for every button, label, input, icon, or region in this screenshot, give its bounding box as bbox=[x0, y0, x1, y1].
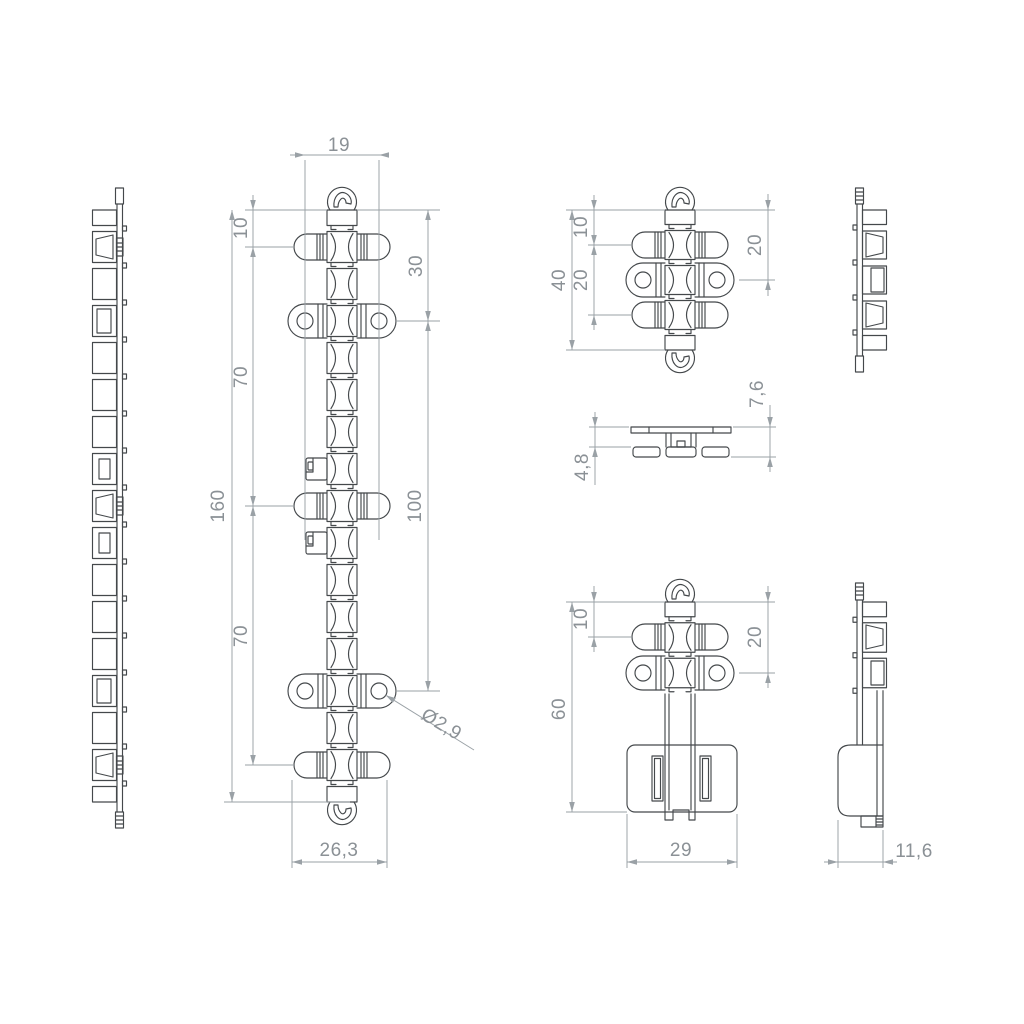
front-view-40 bbox=[626, 187, 734, 372]
dim-hole-span-19: 19 bbox=[328, 135, 350, 157]
dim-top-to-pin-10-40: 10 bbox=[571, 216, 593, 238]
front-view-60 bbox=[626, 579, 737, 820]
dim-top-to-pin-10-60: 10 bbox=[571, 608, 593, 630]
top-section-view bbox=[631, 427, 731, 457]
dim-body-height-4-8: 4,8 bbox=[572, 453, 594, 481]
drawing-stage: 19 10 70 160 70 30 100 26,3 Ø2,9 40 10 2… bbox=[0, 0, 1024, 1024]
technical-drawing-canvas bbox=[0, 0, 1024, 1024]
dim-top-to-hole-20-60: 20 bbox=[745, 626, 767, 648]
dim-overall-height-7-6: 7,6 bbox=[747, 380, 769, 408]
dim-pin-pitch-70-upper: 70 bbox=[231, 366, 253, 388]
dim-top-to-hole-20-40: 20 bbox=[745, 234, 767, 256]
dim-hole-pitch-100: 100 bbox=[405, 489, 427, 522]
top-section-dimensions bbox=[589, 405, 776, 485]
side-view-160 bbox=[93, 188, 127, 828]
side-view-40 bbox=[853, 188, 887, 372]
dim-overall-40: 40 bbox=[549, 269, 571, 291]
dim-base-width-29: 29 bbox=[670, 840, 692, 862]
dim-top-to-hole-30: 30 bbox=[406, 255, 428, 277]
dim-pin-pitch-70-lower: 70 bbox=[231, 625, 253, 647]
front-view-40-dimensions bbox=[566, 194, 775, 350]
side-view-60 bbox=[838, 583, 887, 827]
front-view-160 bbox=[288, 187, 396, 824]
dim-overall-160: 160 bbox=[208, 489, 230, 522]
dim-base-width-26-3: 26,3 bbox=[320, 840, 359, 862]
dim-pin-pitch-20-40: 20 bbox=[571, 269, 593, 291]
dim-top-to-pin-10-160: 10 bbox=[231, 217, 253, 239]
front-view-60-dimensions bbox=[566, 586, 775, 868]
dim-base-depth-11-6: 11,6 bbox=[895, 841, 933, 863]
dim-overall-60: 60 bbox=[549, 698, 571, 720]
